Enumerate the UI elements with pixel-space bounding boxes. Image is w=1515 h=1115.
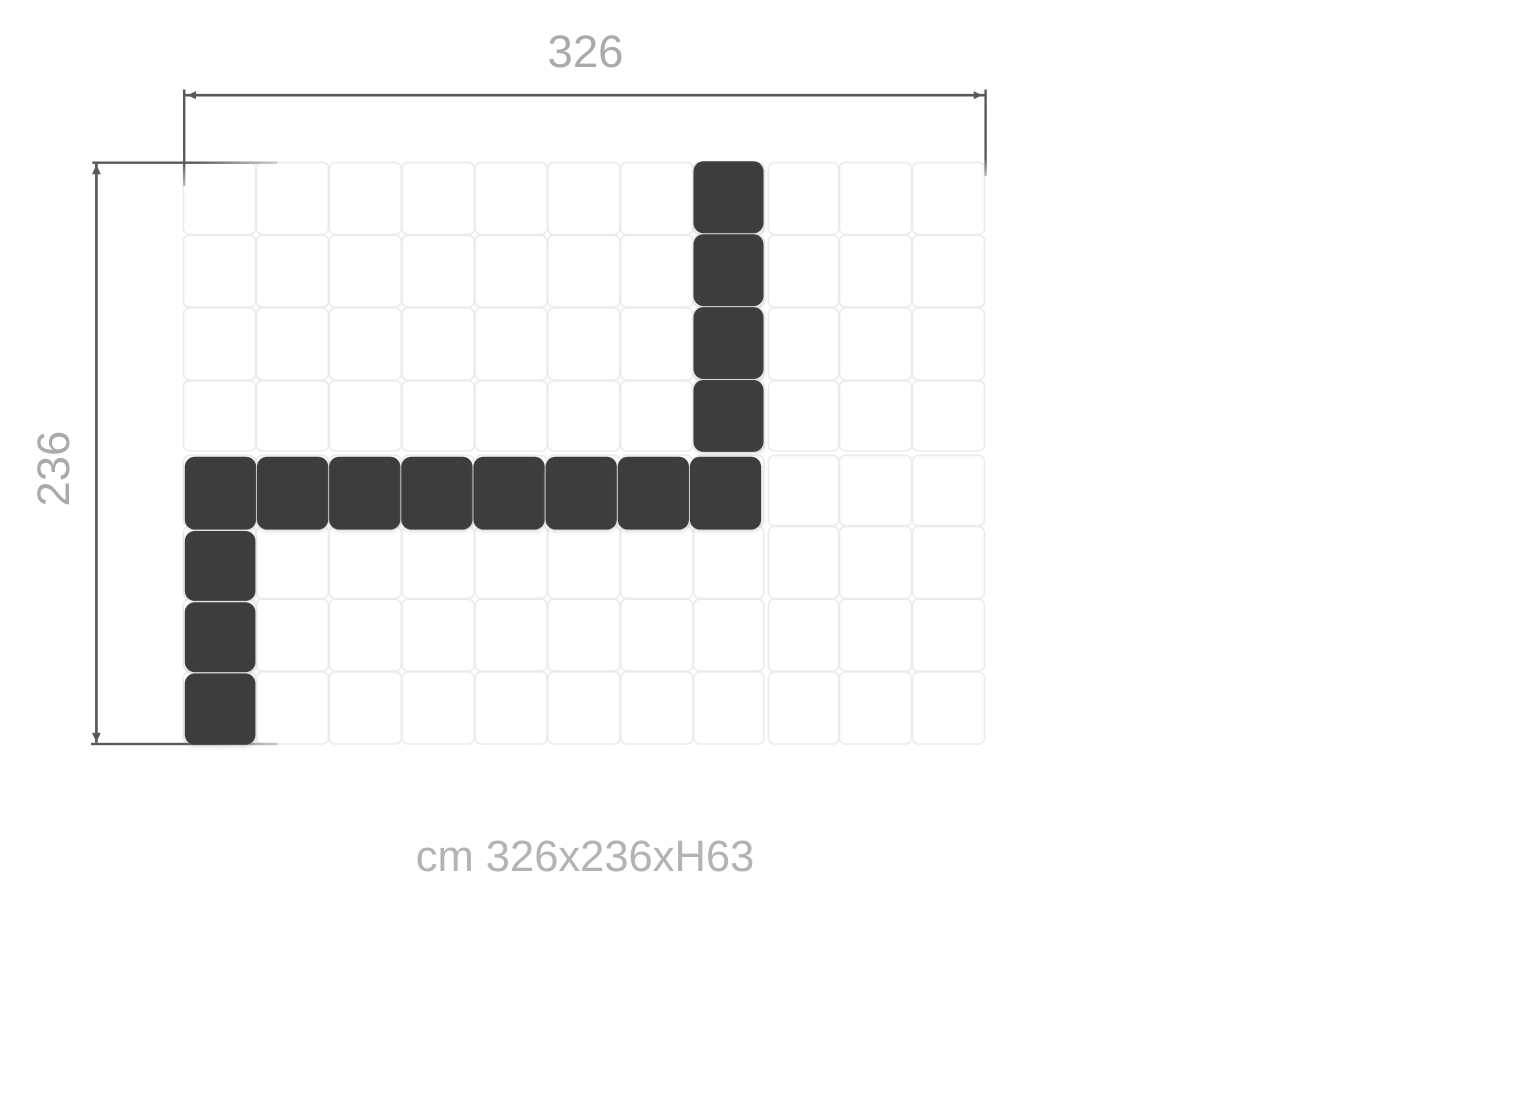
svg-text:326: 326 xyxy=(548,26,624,77)
svg-text:cm 326x236xH63: cm 326x236xH63 xyxy=(416,833,755,881)
svg-text:236: 236 xyxy=(28,431,79,507)
